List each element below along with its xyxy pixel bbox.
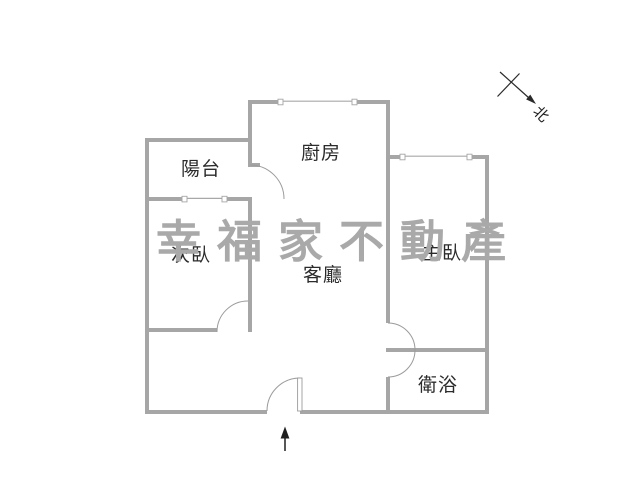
wall-master-top-left-stub: [390, 155, 400, 159]
wall-balcony-bottom-left: [145, 197, 182, 201]
wall-bathroom-top: [386, 348, 485, 352]
wall-living-master-divider: [386, 100, 390, 323]
room-labels: 陽台 廚房 次臥 客廳 主臥 衛浴: [171, 141, 462, 396]
wall-bathroom-left: [386, 377, 390, 414]
watermark-text: 幸福家不動產: [156, 215, 522, 268]
bedroom2-door-arc: [217, 301, 248, 332]
north-compass: 北: [498, 72, 553, 126]
compass-cross-line: [498, 74, 520, 97]
wall-bedroom2-bottom: [145, 328, 217, 332]
entrance-door-arc: [267, 378, 300, 411]
room-label-bathroom: 衛浴: [418, 374, 458, 396]
doors: [217, 165, 415, 411]
wall-outer-right: [485, 155, 489, 414]
master-bedroom-door-arc: [388, 323, 415, 350]
wall-kitchen-left: [248, 100, 252, 167]
wall-kitchen-top-left: [248, 100, 278, 104]
entrance-arrow-icon: [281, 427, 290, 452]
wall-bottom-right: [300, 410, 489, 414]
wall-master-top-right: [472, 155, 485, 159]
bathroom-door-arc: [388, 350, 415, 377]
compass-north-label: 北: [529, 102, 552, 125]
kitchen-window: [278, 99, 357, 105]
floor-plan-canvas: 陽台 廚房 次臥 客廳 主臥 衛浴 幸福家不動產 北: [0, 0, 640, 480]
wall-balcony-top: [145, 138, 252, 142]
room-label-balcony: 陽台: [181, 158, 221, 180]
room-label-kitchen: 廚房: [301, 141, 341, 164]
entrance-door-leaf: [298, 378, 302, 411]
compass-main-line: [500, 72, 529, 98]
floor-plan-svg: 陽台 廚房 次臥 客廳 主臥 衛浴 幸福家不動產 北: [0, 0, 640, 480]
kitchen-door-arc: [250, 165, 284, 199]
balcony-window: [182, 196, 227, 202]
master-bedroom-window: [400, 154, 472, 160]
wall-kitchen-top-right: [357, 100, 390, 104]
wall-bottom-left: [145, 410, 267, 414]
wall-outer-left: [145, 138, 149, 414]
